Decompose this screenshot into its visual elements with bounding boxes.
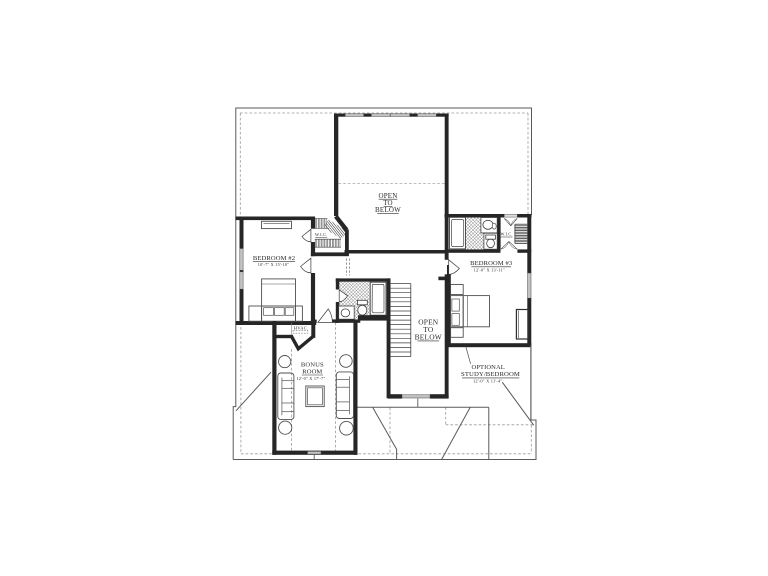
svg-text:HVAC: HVAC xyxy=(294,326,307,331)
svg-text:BELOW: BELOW xyxy=(415,332,442,341)
svg-text:BEDROOM #2: BEDROOM #2 xyxy=(253,255,295,262)
svg-text:W.I.C.: W.I.C. xyxy=(501,232,513,237)
svg-text:ROOM: ROOM xyxy=(302,368,322,375)
svg-text:12'-0" X 17'-7": 12'-0" X 17'-7" xyxy=(296,376,325,381)
svg-text:BELOW: BELOW xyxy=(375,206,401,214)
svg-text:12'-0" X 11'-4": 12'-0" X 11'-4" xyxy=(473,379,502,384)
svg-text:OPTIONAL: OPTIONAL xyxy=(472,364,505,371)
svg-text:10'-7" X 15'-10": 10'-7" X 15'-10" xyxy=(258,262,289,267)
svg-text:12'-0" X 13'-11": 12'-0" X 13'-11" xyxy=(474,267,505,272)
svg-text:BEDROOM #3: BEDROOM #3 xyxy=(470,260,513,267)
svg-text:BONUS: BONUS xyxy=(301,361,324,368)
svg-text:STUDY/BEDROOM: STUDY/BEDROOM xyxy=(461,371,520,378)
svg-text:W.I.C.: W.I.C. xyxy=(315,232,328,237)
